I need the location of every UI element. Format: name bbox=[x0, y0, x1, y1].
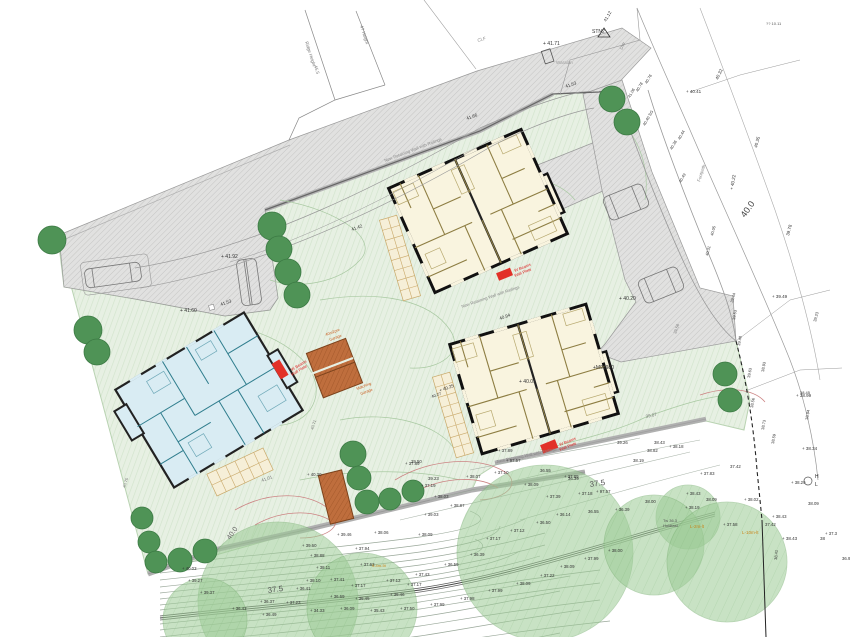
svg-text:+ 40.22: + 40.22 bbox=[729, 174, 737, 190]
svg-text:40.76: 40.76 bbox=[644, 73, 654, 85]
svg-text:H: H bbox=[815, 474, 819, 480]
svg-text:+ 38.88: + 38.88 bbox=[310, 553, 325, 558]
svg-text:+ 38.87: + 38.87 bbox=[450, 503, 465, 508]
svg-text:+ 36.49: + 36.49 bbox=[262, 612, 277, 617]
svg-text:+ 38.06: + 38.06 bbox=[374, 530, 389, 535]
svg-text:+ 39.60: + 39.60 bbox=[302, 543, 317, 548]
svg-text:+ 38.09: + 38.09 bbox=[560, 564, 575, 569]
svg-text:Ridge Height: Ridge Height bbox=[304, 41, 317, 68]
svg-text:39.53: 39.53 bbox=[731, 309, 738, 320]
svg-text:+ 41.71: + 41.71 bbox=[543, 41, 560, 47]
svg-text:+ 41.60: + 41.60 bbox=[180, 308, 197, 314]
svg-text:+ 38.02: + 38.02 bbox=[744, 497, 759, 502]
svg-text:+ 41.92: + 41.92 bbox=[221, 254, 238, 260]
svg-text:+ 36.50: + 36.50 bbox=[536, 520, 551, 525]
svg-text:40.0: 40.0 bbox=[738, 199, 756, 219]
svg-text:+ 38.09: + 38.09 bbox=[524, 482, 539, 487]
svg-text:+ 38.10: + 38.10 bbox=[306, 578, 321, 583]
svg-text:+ 37.12: + 37.12 bbox=[510, 528, 525, 533]
svg-text:38.93: 38.93 bbox=[760, 361, 767, 372]
svg-text:Waralan: Waralan bbox=[556, 60, 573, 65]
svg-text:4? Height: 4? Height bbox=[359, 25, 370, 46]
svg-text:Holdfast: Holdfast bbox=[663, 523, 679, 528]
svg-text:+ 37.98: + 37.98 bbox=[460, 596, 475, 601]
svg-text:40.40 SG: 40.40 SG bbox=[642, 109, 655, 126]
svg-text:+ 36.69: + 36.69 bbox=[330, 594, 345, 599]
svg-text:+ 36.09: + 36.09 bbox=[340, 606, 355, 611]
svg-text:+ 37.89: + 37.89 bbox=[498, 448, 513, 453]
svg-text:Footpath: Footpath bbox=[696, 163, 706, 182]
svg-text:+ 38.07: + 38.07 bbox=[466, 474, 481, 479]
svg-text:+ 36.41: + 36.41 bbox=[296, 586, 311, 591]
svg-text:39.78: 39.78 bbox=[785, 224, 793, 237]
svg-text:+ 36.37: + 36.37 bbox=[260, 599, 275, 604]
svg-text:+ 37.58: + 37.58 bbox=[723, 522, 738, 527]
svg-text:+ 39.49: + 39.49 bbox=[772, 294, 788, 299]
svg-text:38.41: 38.41 bbox=[773, 549, 779, 560]
svg-text:40.35: 40.35 bbox=[753, 136, 761, 149]
svg-text:+ 35.43: + 35.43 bbox=[370, 608, 385, 613]
svg-text:+ 37.99: + 37.99 bbox=[488, 588, 503, 593]
svg-text:39.40: 39.40 bbox=[736, 335, 743, 346]
svg-text:+ 37.83: + 37.83 bbox=[700, 471, 715, 476]
svg-text:CLF: CLF bbox=[477, 36, 487, 43]
svg-text:+ 37.17: + 37.17 bbox=[351, 583, 366, 588]
svg-text:+ 36.45: + 36.45 bbox=[355, 596, 370, 601]
svg-text:L: L bbox=[815, 482, 818, 488]
svg-text:+ 37.50: + 37.50 bbox=[400, 606, 415, 611]
svg-text:40.49: 40.49 bbox=[678, 172, 688, 184]
svg-text:38.56: 38.56 bbox=[749, 397, 756, 408]
svg-text:37.42: 37.42 bbox=[730, 464, 741, 469]
svg-text:+ 38.11: + 38.11 bbox=[316, 565, 331, 570]
svg-text:+ 37.18: + 37.18 bbox=[578, 491, 593, 496]
svg-text:+ 38.00: + 38.00 bbox=[608, 548, 623, 553]
svg-text:+ 36.59: + 36.59 bbox=[444, 562, 459, 567]
svg-text:+ 37.19: + 37.19 bbox=[421, 483, 436, 488]
svg-text:L-2m-lt: L-2m-lt bbox=[690, 524, 705, 529]
svg-text:?? 10.11: ?? 10.11 bbox=[766, 21, 782, 26]
svg-text:+M99980: +M99980 bbox=[593, 365, 614, 371]
svg-text:+ 40.03: + 40.03 bbox=[182, 566, 197, 571]
svg-text:45.5: 45.5 bbox=[313, 65, 321, 75]
svg-text:+ 39.27: + 39.27 bbox=[188, 578, 203, 583]
svg-text:38.43: 38.43 bbox=[654, 440, 665, 445]
svg-text:+ 38.09: + 38.09 bbox=[516, 581, 531, 586]
svg-text:36.96: 36.96 bbox=[842, 556, 850, 561]
svg-text:38.19: 38.19 bbox=[633, 458, 644, 463]
svg-text:+ 39.03: + 39.03 bbox=[424, 512, 439, 517]
svg-text:39.23: 39.23 bbox=[812, 311, 820, 323]
svg-text:L-10m-lt: L-10m-lt bbox=[742, 530, 759, 535]
svg-text:+ 40.30: + 40.30 bbox=[307, 472, 322, 477]
svg-text:+ 40.01: + 40.01 bbox=[519, 379, 536, 385]
svg-text:38.73: 38.73 bbox=[760, 419, 767, 430]
svg-text:36.55: 36.55 bbox=[588, 509, 599, 514]
svg-text:+ 37.89: + 37.89 bbox=[405, 461, 420, 466]
svg-text:+ 37.10: + 37.10 bbox=[494, 470, 509, 475]
svg-text:39.63: 39.63 bbox=[746, 367, 753, 378]
svg-text:40.44: 40.44 bbox=[677, 129, 687, 141]
svg-text:38.09: 38.09 bbox=[808, 501, 819, 506]
svg-text:+ 37.99: + 37.99 bbox=[584, 556, 599, 561]
svg-text:+ 37.89: + 37.89 bbox=[564, 474, 579, 479]
svg-text:+ 36.43: + 36.43 bbox=[232, 606, 247, 611]
svg-text:38.00: 38.00 bbox=[645, 499, 656, 504]
svg-text:+ 38.09: + 38.09 bbox=[418, 532, 433, 537]
svg-text:+ 37.17: + 37.17 bbox=[486, 536, 501, 541]
svg-text:40.32: 40.32 bbox=[714, 68, 724, 81]
svg-text:+ 37.22: + 37.22 bbox=[540, 573, 555, 578]
svg-text:38.09: 38.09 bbox=[706, 497, 717, 502]
svg-text:+ 36.39: + 36.39 bbox=[470, 552, 485, 557]
svg-text:+ 36.46: + 36.46 bbox=[390, 592, 405, 597]
svg-text:38.82: 38.82 bbox=[647, 448, 658, 453]
svg-text:+ 37.43: + 37.43 bbox=[415, 572, 430, 577]
svg-text:+ 37.41: + 37.41 bbox=[330, 577, 345, 582]
svg-text:38.45: 38.45 bbox=[800, 390, 811, 395]
svg-text:+ 37.3: + 37.3 bbox=[825, 531, 838, 536]
svg-text:38.59: 38.59 bbox=[770, 433, 777, 444]
svg-text:+ 37.99: + 37.99 bbox=[430, 602, 445, 607]
svg-text:37.42: 37.42 bbox=[765, 522, 776, 527]
svg-text:+ 37.23: + 37.23 bbox=[286, 600, 301, 605]
svg-text:39.26: 39.26 bbox=[617, 440, 628, 445]
svg-text:+ 97.57: + 97.57 bbox=[596, 489, 611, 494]
svg-text:+ 34.33: + 34.33 bbox=[310, 608, 325, 613]
svg-text:+ 38.18: + 38.18 bbox=[669, 444, 684, 449]
svg-text:+ 38.43: + 38.43 bbox=[772, 514, 787, 519]
svg-text:36.55: 36.55 bbox=[540, 468, 551, 473]
svg-text:+ 38.03: + 38.03 bbox=[434, 494, 449, 499]
svg-text:+ 37.12: + 37.12 bbox=[386, 578, 401, 583]
svg-text:38: 38 bbox=[820, 536, 826, 541]
svg-text:+ 37.94: + 37.94 bbox=[355, 546, 370, 551]
svg-text:+ 38.34: + 38.34 bbox=[802, 446, 818, 451]
svg-text:41.12: 41.12 bbox=[603, 10, 613, 23]
svg-text:+ 37.39: + 37.39 bbox=[546, 494, 561, 499]
svg-text:+ 37.17: + 37.17 bbox=[407, 582, 422, 587]
svg-text:+ 38.43: + 38.43 bbox=[686, 491, 701, 496]
svg-text:+ 38.19: + 38.19 bbox=[685, 505, 700, 510]
svg-text:+ 36.39: + 36.39 bbox=[615, 507, 630, 512]
svg-text:+ 36.14: + 36.14 bbox=[556, 512, 571, 517]
svg-text:39.44: 39.44 bbox=[729, 292, 737, 304]
svg-text:5-4m-5t: 5-4m-5t bbox=[372, 563, 387, 568]
svg-text:38.94: 38.94 bbox=[804, 409, 811, 420]
svg-text:40.05: 40.05 bbox=[709, 225, 717, 237]
svg-text:+ 40.20: + 40.20 bbox=[619, 296, 636, 302]
svg-text:39.23: 39.23 bbox=[428, 476, 439, 481]
svg-text:40.36: 40.36 bbox=[669, 139, 679, 151]
svg-text:+ 39.46: + 39.46 bbox=[337, 532, 352, 537]
svg-text:+ 40.41: + 40.41 bbox=[686, 89, 702, 94]
svg-text:+ 38.43: + 38.43 bbox=[782, 536, 798, 541]
svg-text:+ 39.37: + 39.37 bbox=[200, 590, 215, 595]
svg-text:+ 97.57: + 97.57 bbox=[506, 458, 521, 463]
